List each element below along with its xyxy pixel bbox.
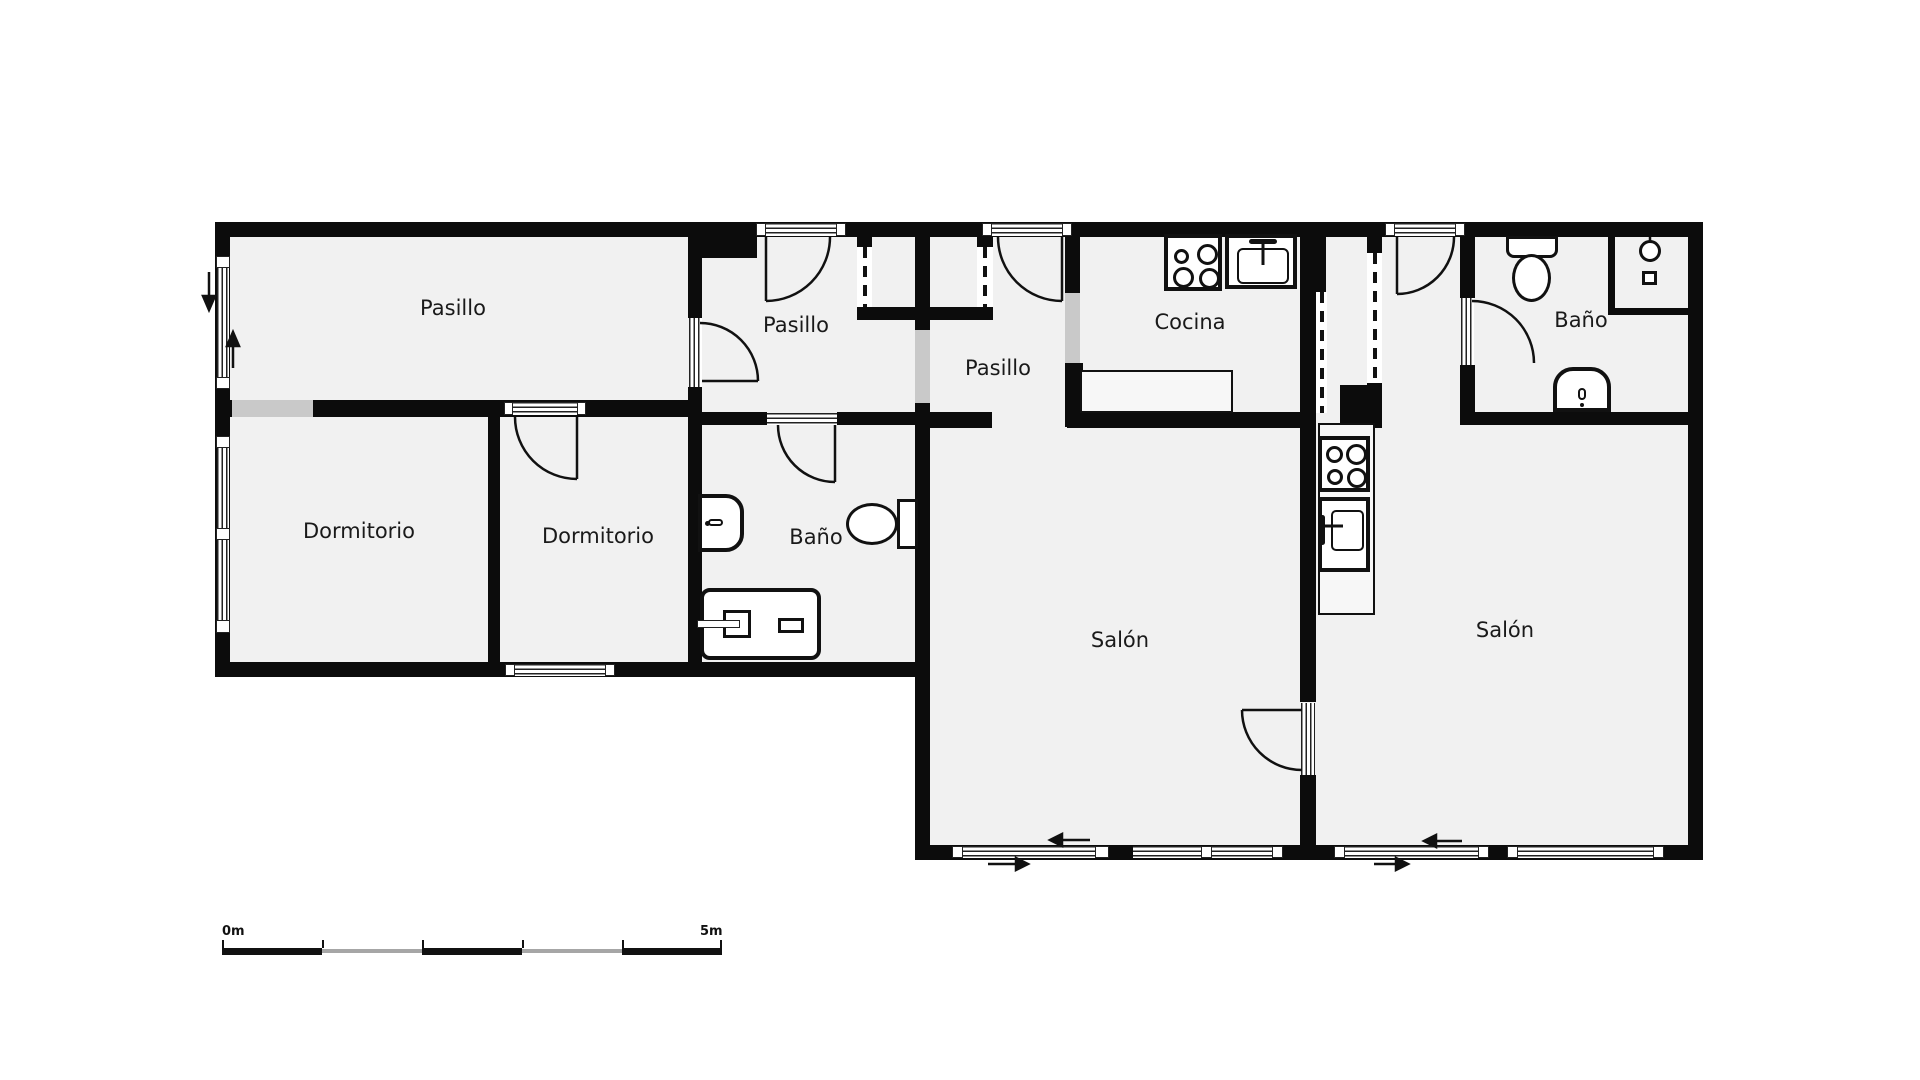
- scale-segment: [222, 948, 322, 955]
- door-arc: [766, 237, 830, 301]
- scale-segment: [422, 948, 522, 955]
- room-label-pasillo-mid: Pasillo: [763, 313, 829, 337]
- door-arc: [1242, 710, 1302, 770]
- floor-plan: Pasillo Pasillo Pasillo Cocina Baño Dorm…: [0, 0, 1920, 1080]
- door-arc: [515, 417, 577, 479]
- scale-tick: [522, 940, 524, 948]
- room-label-salon-left: Salón: [1091, 628, 1149, 652]
- scale-tick: [322, 940, 324, 948]
- door-arcs-overlay: [0, 0, 1920, 1080]
- door-arc: [1397, 237, 1454, 294]
- scale-segment: [322, 949, 422, 953]
- door-arc: [1472, 301, 1534, 363]
- room-label-pasillo-main: Pasillo: [420, 296, 486, 320]
- door-arc: [700, 323, 758, 381]
- room-label-bano-right: Baño: [1554, 308, 1607, 332]
- room-label-cocina: Cocina: [1154, 310, 1225, 334]
- scale-tick: [720, 940, 722, 948]
- door-arc: [998, 237, 1062, 301]
- scale-tick: [622, 940, 624, 948]
- room-label-bano-mid: Baño: [789, 525, 842, 549]
- scale-tick: [422, 940, 424, 948]
- scale-tick: [222, 940, 224, 948]
- room-label-salon-right: Salón: [1476, 618, 1534, 642]
- scale-segment: [622, 948, 722, 955]
- room-label-pasillo-right: Pasillo: [965, 356, 1031, 380]
- room-label-dormitorio-1: Dormitorio: [303, 519, 415, 543]
- door-arc: [778, 425, 835, 482]
- room-label-dormitorio-2: Dormitorio: [542, 524, 654, 548]
- scale-end-label: 5m: [700, 924, 723, 939]
- scale-start-label: 0m: [222, 924, 245, 939]
- scale-segment: [522, 949, 622, 953]
